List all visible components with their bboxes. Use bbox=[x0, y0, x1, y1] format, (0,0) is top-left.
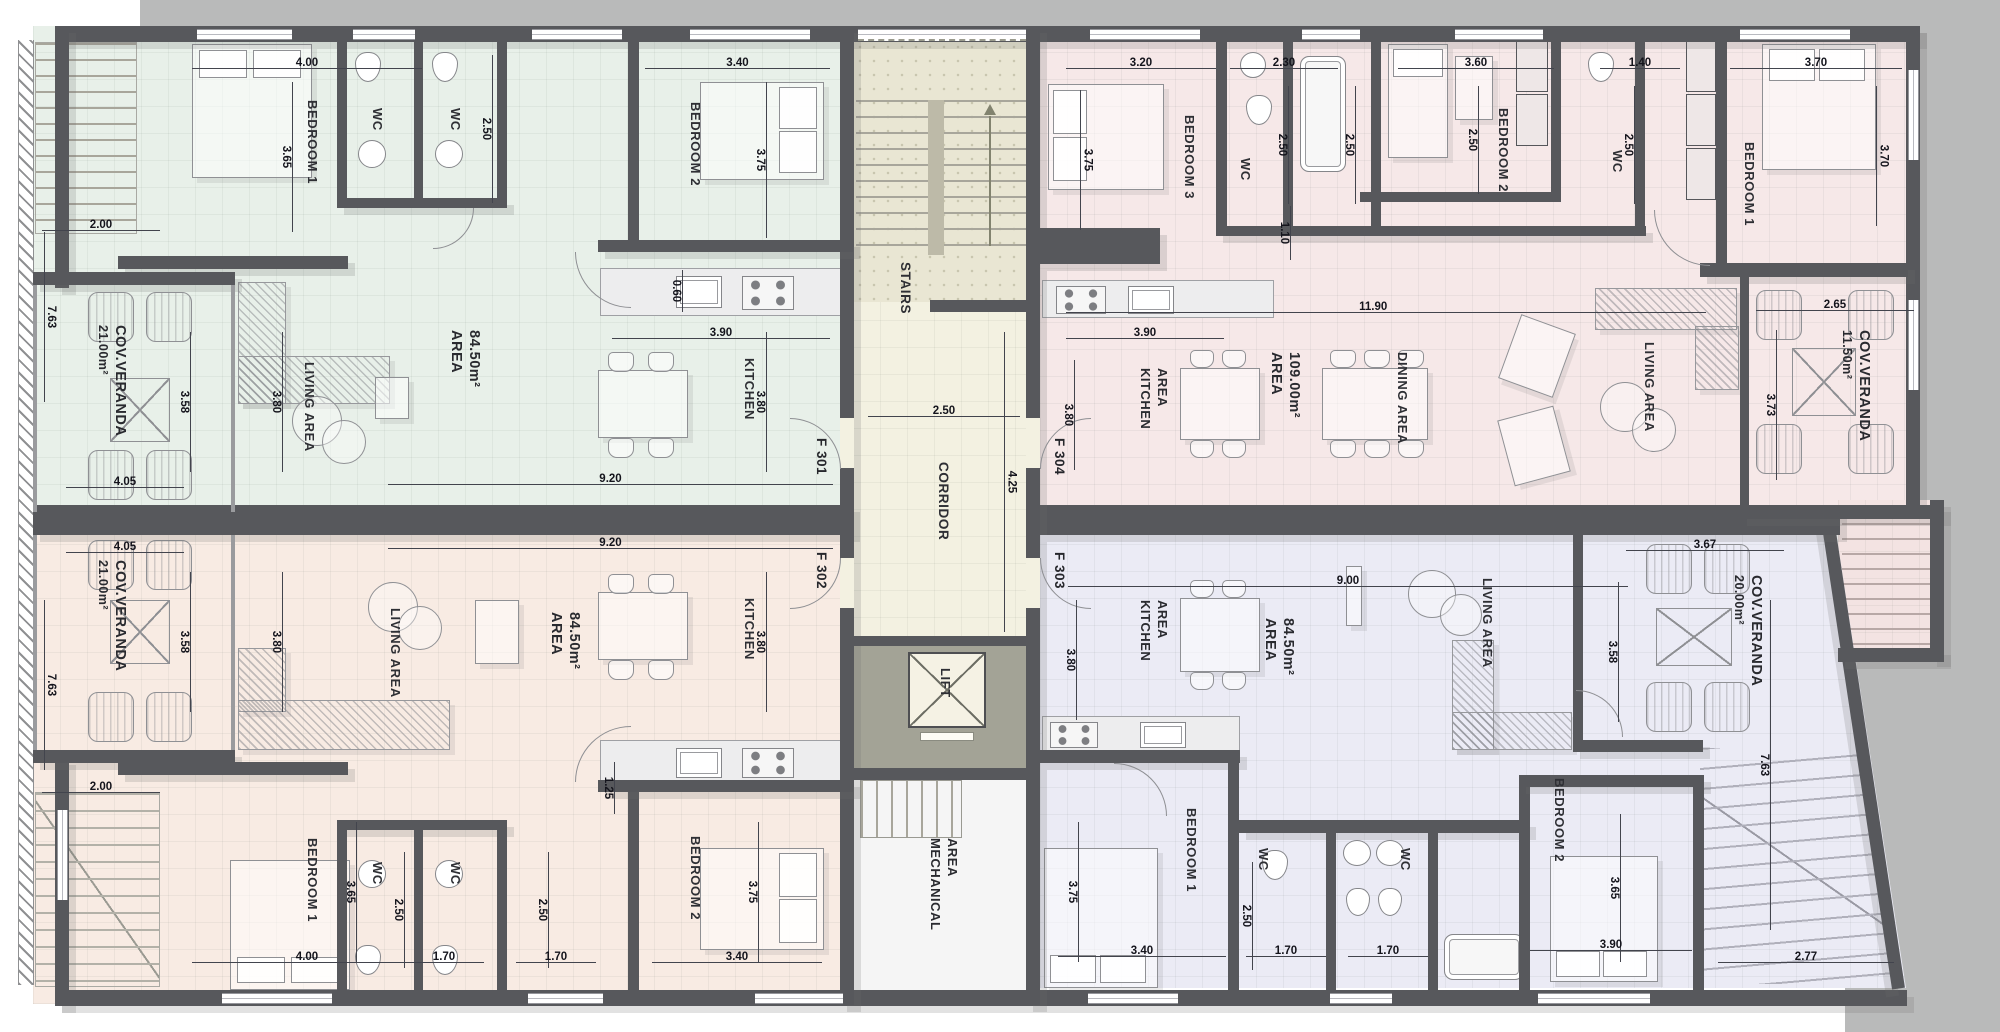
door-opening bbox=[1026, 418, 1040, 468]
hob-icon bbox=[1056, 286, 1106, 314]
dim-bedroom2-width: 3.40 bbox=[652, 962, 822, 963]
dim-side-offset: 2.00 bbox=[42, 230, 160, 231]
core-stair-stringer bbox=[928, 100, 944, 255]
dim-bath-height: 2.50 bbox=[1355, 86, 1356, 204]
window bbox=[1330, 993, 1392, 1004]
wall-mid-band-left bbox=[33, 505, 853, 535]
dim-bedroom1-width: 4.00 bbox=[192, 68, 422, 69]
hob-icon bbox=[742, 748, 794, 778]
mech-stair-treads bbox=[860, 780, 962, 838]
wall bbox=[1740, 505, 1944, 519]
room-label-living: LIVING AREA bbox=[302, 362, 317, 452]
veranda-label-f301: 21.00m²COV.VERANDA bbox=[96, 325, 128, 436]
bed bbox=[192, 44, 312, 178]
sofa bbox=[1695, 326, 1739, 390]
chair bbox=[608, 574, 634, 594]
room-label-living: LIVING AREA bbox=[1642, 342, 1657, 432]
basin-icon bbox=[435, 140, 463, 168]
window bbox=[222, 993, 332, 1004]
dining-table bbox=[598, 370, 688, 438]
wardrobe bbox=[1686, 148, 1716, 200]
wall bbox=[1700, 263, 1908, 277]
dim-corridor-height: 4.25 bbox=[1004, 332, 1005, 632]
wall-corridor-top bbox=[930, 300, 1040, 312]
dim-edge: 7.63 bbox=[1770, 600, 1771, 930]
flat-door-label-f301: F 301 bbox=[814, 438, 829, 475]
wall bbox=[1740, 277, 1749, 512]
veranda-railing bbox=[33, 285, 37, 512]
wall bbox=[497, 26, 507, 208]
chair bbox=[1190, 672, 1214, 690]
dim-kitchen-height: 3.80 bbox=[766, 332, 767, 472]
basin-icon bbox=[1343, 840, 1371, 866]
sofa bbox=[1595, 288, 1737, 330]
room-label-dining: DINING AREA bbox=[1395, 352, 1410, 444]
chair bbox=[1190, 580, 1214, 598]
veranda-chair bbox=[146, 292, 192, 342]
dim-kitchen-height: 3.80 bbox=[766, 572, 767, 712]
dim-veranda-height: 3.58 bbox=[1618, 582, 1619, 722]
chair bbox=[648, 438, 674, 458]
kitchen-island bbox=[1180, 368, 1260, 440]
wall bbox=[1239, 820, 1529, 833]
window bbox=[690, 29, 810, 40]
dim-bedroom1-height: 3.75 bbox=[1078, 822, 1079, 962]
wall bbox=[1838, 648, 1944, 662]
bathtub-icon bbox=[1300, 56, 1346, 172]
dim-bedroom1-width: 4.00 bbox=[192, 962, 422, 963]
room-label-wc: WC bbox=[370, 862, 385, 885]
area-label-f304: AREA109.00m² bbox=[1268, 352, 1302, 418]
chair bbox=[1364, 350, 1390, 368]
bed bbox=[1044, 848, 1158, 988]
window-dashed-lintel bbox=[858, 29, 1026, 41]
room-label-wc: WC bbox=[1256, 848, 1271, 871]
tv-stand bbox=[375, 377, 409, 419]
room-label-bedroom2: BEDROOM 2 bbox=[688, 102, 703, 186]
veranda-chair bbox=[146, 692, 192, 742]
bed bbox=[1048, 84, 1164, 190]
dim-living-height: 3.80 bbox=[282, 332, 283, 472]
dim-veranda-width: 3.67 bbox=[1626, 550, 1784, 551]
dim-kitchen-height: 3.80 bbox=[1076, 600, 1077, 720]
bed bbox=[1388, 44, 1448, 158]
window bbox=[1088, 993, 1178, 1004]
kitchen-area-label-f304: KITCHENAREA bbox=[1138, 368, 1170, 429]
dim-kitchen-width: 3.90 bbox=[1066, 338, 1224, 339]
wall bbox=[414, 26, 423, 208]
door-opening bbox=[1026, 558, 1040, 608]
dining-table bbox=[1322, 368, 1428, 440]
hob-icon bbox=[742, 276, 794, 310]
dim-wc1-width: 1.70 bbox=[404, 962, 484, 963]
dim-corridor-width: 2.50 bbox=[868, 416, 1020, 417]
wall bbox=[1716, 26, 1727, 266]
area-label-f301: AREA84.50m² bbox=[448, 330, 482, 388]
wall bbox=[337, 26, 347, 208]
wall bbox=[1930, 500, 1944, 660]
core-label-lift: LIFT bbox=[938, 668, 953, 698]
sofa bbox=[1452, 712, 1572, 750]
veranda-label-f304: 11.50m²COV.VERANDA bbox=[1840, 330, 1872, 441]
dim-openplan-width: 9.20 bbox=[388, 484, 833, 485]
basin-icon bbox=[1240, 52, 1266, 78]
chair bbox=[608, 660, 634, 680]
window bbox=[528, 993, 603, 1004]
kitchen-counter bbox=[600, 740, 852, 784]
room-label-living: LIVING AREA bbox=[1480, 578, 1495, 668]
dim-wc1-width: 2.30 bbox=[1230, 68, 1338, 69]
core-label-mechanical: MECHANICALAREA bbox=[928, 838, 960, 930]
dim-bedroom2-height: 2.50 bbox=[1478, 86, 1479, 194]
window bbox=[353, 29, 415, 40]
door-opening bbox=[840, 418, 854, 468]
dim-wc1-height: 2.50 bbox=[404, 852, 405, 968]
dim-bedroom2-height: 3.75 bbox=[758, 822, 759, 962]
room-label-living: LIVING AREA bbox=[388, 608, 403, 698]
wall-core-right bbox=[1026, 26, 1040, 1005]
outside-area-top bbox=[140, 0, 2000, 26]
dim-openplan-width: 11.90 bbox=[1066, 312, 1706, 313]
veranda-railing bbox=[33, 535, 37, 750]
room-label-bedroom3: BEDROOM 3 bbox=[1182, 115, 1197, 199]
lift-door-sill bbox=[920, 732, 974, 741]
dim-kitchen-width: 3.90 bbox=[612, 338, 830, 339]
window bbox=[1538, 993, 1650, 1004]
veranda-chair bbox=[146, 540, 192, 590]
chair bbox=[608, 352, 634, 372]
wall-core-left bbox=[840, 26, 854, 1005]
chair bbox=[1190, 350, 1214, 368]
bed bbox=[1550, 856, 1658, 982]
window bbox=[532, 29, 622, 40]
veranda-railing bbox=[231, 285, 235, 512]
kitchen-table bbox=[1180, 598, 1260, 672]
veranda-chair bbox=[1756, 424, 1802, 474]
veranda-railing bbox=[231, 535, 235, 750]
chair bbox=[1190, 440, 1214, 458]
wall bbox=[118, 256, 348, 269]
room-label-bedroom1: BEDROOM 1 bbox=[305, 100, 320, 184]
dim-veranda-width: 4.05 bbox=[66, 552, 184, 553]
coffee-table bbox=[475, 600, 519, 664]
dim-bedroom2-height: 3.75 bbox=[766, 82, 767, 238]
wall bbox=[33, 272, 235, 285]
property-boundary-hatch bbox=[18, 40, 34, 985]
floor-plan-canvas: 4.00 3.65 2.50 3.40 3.75 3.90 3.80 3.80 … bbox=[0, 0, 2000, 1032]
wall bbox=[1371, 26, 1381, 236]
window bbox=[1302, 29, 1360, 40]
room-label-wc: WC bbox=[1238, 158, 1253, 181]
core-label-stairs: STAIRS bbox=[898, 262, 913, 314]
wall-lift-bottom bbox=[853, 768, 1040, 780]
dim-veranda-height: 3.73 bbox=[1776, 330, 1777, 480]
dim-bedroom2-width: 3.60 bbox=[1398, 68, 1554, 69]
chair bbox=[1222, 350, 1246, 368]
dim-wc-height: 2.50 bbox=[1252, 862, 1253, 970]
window bbox=[755, 993, 843, 1004]
chair bbox=[1364, 440, 1390, 458]
chair bbox=[648, 352, 674, 372]
room-label-bedroom1: BEDROOM 1 bbox=[1184, 808, 1199, 892]
flat-door-label-f302: F 302 bbox=[814, 552, 829, 589]
veranda-chair bbox=[1704, 682, 1750, 732]
bathtub-icon bbox=[1444, 934, 1524, 980]
wall bbox=[1216, 26, 1227, 236]
window bbox=[1908, 70, 1919, 160]
dim-hall: 1.10 bbox=[1290, 206, 1291, 260]
dim-bedroom1-height: 3.65 bbox=[292, 82, 293, 232]
window bbox=[57, 810, 68, 900]
wall bbox=[118, 762, 348, 775]
dim-living-height: 3.80 bbox=[282, 572, 283, 712]
dim-wc-height: 2.50 bbox=[492, 55, 493, 203]
dim-wc2-width: 1.70 bbox=[516, 962, 596, 963]
dim-bedroom2-width: 3.40 bbox=[645, 68, 830, 69]
core-stair-direction-line bbox=[989, 116, 991, 246]
wall bbox=[1360, 192, 1552, 202]
wall-mid-band-right bbox=[1040, 505, 1840, 535]
veranda-table bbox=[1656, 608, 1732, 666]
core-stair-arrow-icon bbox=[984, 104, 996, 115]
wall bbox=[1693, 785, 1704, 993]
dim-bedroom3-width: 3.20 bbox=[1066, 68, 1216, 69]
wall-lift-top bbox=[853, 636, 1040, 646]
dim-sink: 0.60 bbox=[682, 270, 683, 312]
chair bbox=[648, 660, 674, 680]
wall bbox=[1228, 763, 1239, 993]
room-label-bedroom1: BEDROOM 1 bbox=[1742, 142, 1757, 226]
window bbox=[1740, 29, 1850, 40]
room-label-kitchen: KITCHEN bbox=[742, 598, 757, 660]
outside-area-right bbox=[1918, 0, 2000, 512]
veranda-chair bbox=[146, 450, 192, 500]
window bbox=[197, 29, 292, 40]
wall bbox=[1040, 750, 1240, 763]
chair bbox=[1222, 672, 1246, 690]
dim-wc2-height: 2.50 bbox=[1634, 86, 1635, 204]
dim-bedroom1-width: 3.40 bbox=[1058, 956, 1226, 957]
dim-wc1-height: 2.50 bbox=[1288, 86, 1289, 204]
basin-icon bbox=[358, 140, 386, 168]
wardrobe bbox=[1686, 40, 1716, 92]
kitchen-counter bbox=[600, 268, 852, 316]
wardrobe bbox=[1516, 40, 1548, 92]
bed bbox=[230, 860, 350, 990]
dim-edge: 7.63 bbox=[44, 600, 45, 770]
exterior-stair-top-left bbox=[35, 42, 137, 234]
dim-wc1-width: 1.70 bbox=[1246, 956, 1326, 957]
dim-bedroom1-height: 3.70 bbox=[1876, 86, 1877, 226]
wall bbox=[628, 26, 639, 252]
room-label-wc: WC bbox=[448, 862, 463, 885]
hob-icon bbox=[1050, 722, 1098, 748]
window bbox=[1908, 300, 1919, 390]
chair bbox=[1222, 580, 1246, 598]
wardrobe bbox=[1516, 94, 1548, 146]
dim-bedroom1-height: 3.65 bbox=[356, 822, 357, 962]
exterior-stair-bottom-left bbox=[35, 792, 160, 987]
veranda-chair bbox=[1646, 682, 1692, 732]
dim-veranda-width: 4.05 bbox=[66, 487, 184, 488]
veranda-chair bbox=[1756, 290, 1802, 340]
f304-exterior-stair-treads bbox=[1842, 508, 1930, 648]
wall bbox=[1519, 775, 1530, 993]
wall bbox=[337, 820, 347, 992]
room-label-bedroom2: BEDROOM 2 bbox=[688, 836, 703, 920]
dim-edge: 7.63 bbox=[44, 232, 45, 402]
armchair bbox=[398, 606, 442, 650]
dim-bedroom2-width: 3.90 bbox=[1530, 950, 1692, 951]
wall-exterior-left-upper bbox=[55, 26, 69, 288]
dim-openplan-width: 9.00 bbox=[1068, 586, 1628, 587]
sink-icon bbox=[676, 748, 722, 778]
room-label-wc: WC bbox=[448, 108, 463, 131]
chair bbox=[608, 438, 634, 458]
sink-icon bbox=[1128, 286, 1174, 314]
core-label-corridor: CORRIDOR bbox=[936, 462, 951, 540]
wall bbox=[337, 198, 507, 208]
veranda-label-f302: 21.00m²COV.VERANDA bbox=[96, 560, 128, 671]
wall bbox=[1428, 833, 1438, 993]
chair bbox=[1330, 440, 1356, 458]
room-label-bedroom1: BEDROOM 1 bbox=[305, 838, 320, 922]
veranda-chair bbox=[88, 692, 134, 742]
window bbox=[1090, 29, 1200, 40]
dim-veranda-width: 2.65 bbox=[1756, 310, 1914, 311]
dining-table bbox=[598, 592, 688, 660]
door-opening bbox=[840, 558, 854, 608]
wall bbox=[497, 820, 507, 992]
room-label-bedroom2: BEDROOM 2 bbox=[1496, 108, 1511, 192]
window bbox=[1455, 29, 1543, 40]
sink-icon bbox=[1140, 722, 1186, 748]
dim-veranda-height: 3.58 bbox=[190, 572, 191, 712]
wall bbox=[598, 780, 853, 792]
wall bbox=[598, 240, 853, 252]
armchair bbox=[1440, 594, 1482, 636]
dim-bedroom1-width: 3.70 bbox=[1730, 68, 1902, 69]
dim-wc2-width: 1.40 bbox=[1600, 68, 1680, 69]
room-label-bedroom2: BEDROOM 2 bbox=[1552, 778, 1567, 862]
room-label-wc: WC bbox=[1398, 848, 1413, 871]
room-label-wc: WC bbox=[370, 108, 385, 131]
dim-kitchen-height: 3.80 bbox=[1074, 360, 1075, 470]
wall bbox=[1519, 775, 1704, 787]
kitchen-area-label-f303: KITCHENAREA bbox=[1138, 600, 1170, 661]
chair bbox=[1222, 440, 1246, 458]
area-label-f302: AREA84.50m² bbox=[548, 612, 582, 670]
room-label-kitchen: KITCHEN bbox=[742, 358, 757, 420]
flat-door-label-f303: F 303 bbox=[1052, 552, 1067, 589]
room-label-wc: WC bbox=[1610, 150, 1625, 173]
armchair bbox=[322, 420, 366, 464]
dim-bedroom3-height: 3.75 bbox=[1080, 90, 1081, 230]
chair bbox=[648, 574, 674, 594]
wall bbox=[1573, 740, 1703, 752]
wall bbox=[1551, 26, 1561, 202]
veranda-label-f303: 20.00m²COV.VERANDA bbox=[1732, 575, 1764, 686]
chair bbox=[1330, 350, 1356, 368]
wardrobe bbox=[1686, 94, 1716, 146]
wall bbox=[1040, 228, 1160, 264]
dim-side-offset: 2.00 bbox=[42, 792, 160, 793]
bed bbox=[700, 848, 824, 950]
dim-openplan-width: 9.20 bbox=[388, 548, 833, 549]
wall bbox=[1326, 833, 1336, 993]
dim-wc2-width: 1.70 bbox=[1348, 956, 1428, 957]
veranda-chair bbox=[1646, 544, 1692, 594]
dim-veranda-height: 3.58 bbox=[190, 332, 191, 472]
area-label-f303: AREA84.50m² bbox=[1262, 618, 1296, 676]
dim-hall: 1.25 bbox=[614, 762, 615, 814]
flat-door-label-f304: F 304 bbox=[1052, 438, 1067, 475]
sofa bbox=[238, 700, 450, 750]
wall bbox=[628, 780, 639, 992]
wall bbox=[414, 820, 423, 992]
dim-corner: 2.77 bbox=[1718, 962, 1894, 963]
